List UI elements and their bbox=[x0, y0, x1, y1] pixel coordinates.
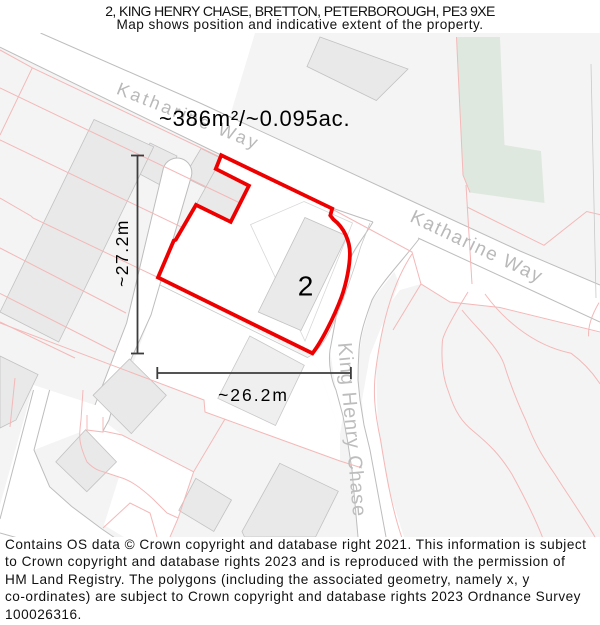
svg-text:~26.2m: ~26.2m bbox=[218, 385, 289, 405]
svg-text:~27.2m: ~27.2m bbox=[112, 219, 132, 287]
svg-text:2: 2 bbox=[298, 271, 314, 302]
